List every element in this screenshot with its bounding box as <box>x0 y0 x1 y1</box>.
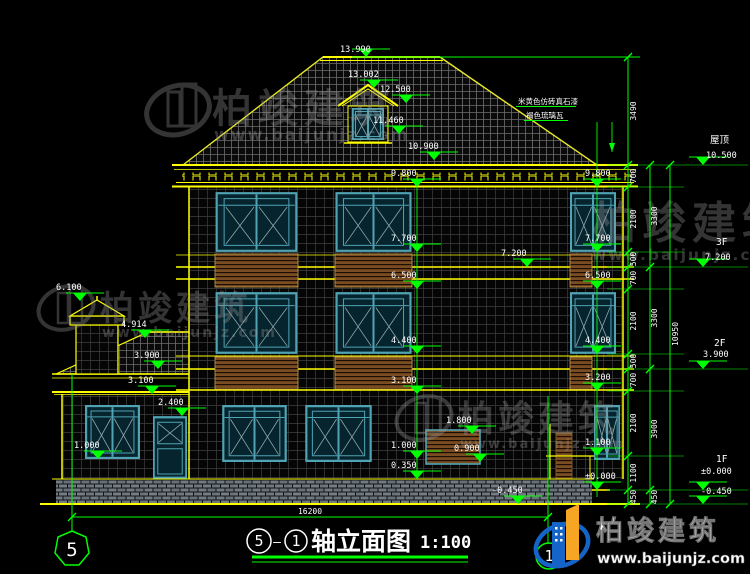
dim-value: 700 <box>629 271 638 286</box>
axis-bubble-5: 5 <box>55 531 89 565</box>
dim-value: 3300 <box>650 206 659 225</box>
drawing-canvas: 柏竣建筑 www.baijunjz.com 柏竣建筑 www.baijunjz.… <box>0 0 750 574</box>
floor-elev: 3.900 <box>703 350 729 360</box>
brand-logo: 柏竣建筑 www.baijunjz.com <box>529 504 745 574</box>
title-axis-to: 1 <box>291 532 300 550</box>
elev-label: -0.450 <box>492 486 523 496</box>
logo-building-orange <box>566 504 579 560</box>
note-wall-finish: 米黄色仿砖真石漆 <box>518 96 578 106</box>
elev-label: 6.100 <box>56 283 82 293</box>
dim-overall-width: 16200 <box>298 507 322 516</box>
dim-value: 450 <box>629 490 638 505</box>
watermark-url: www.baijunjz.com <box>214 125 409 144</box>
elev-label: 13.002 <box>348 70 379 80</box>
elev-label: 3.100 <box>128 376 154 386</box>
elev-label: 6.500 <box>391 271 417 281</box>
elev-label: 1.000 <box>391 441 417 451</box>
dim-value: 700 <box>629 169 638 184</box>
dim-value: 1100 <box>629 463 638 482</box>
dim-value: 500 <box>629 354 638 369</box>
elev-label: 1.100 <box>585 438 611 448</box>
elev-label: 1.800 <box>446 416 472 426</box>
elev-label: 0.350 <box>391 461 417 471</box>
elev-label: 1.000 <box>74 441 100 451</box>
floor-elev: -0.450 <box>701 487 732 497</box>
watermark-brand: 柏竣建筑 <box>458 399 618 440</box>
dim-value: 500 <box>629 252 638 267</box>
elev-label: 11.460 <box>373 116 404 126</box>
elev-label: 9.800 <box>585 169 611 179</box>
material-notes: 米黄色仿砖真石漆 褐色琉璃瓦 <box>518 96 578 120</box>
logo-url-text: www.baijunjz.com <box>597 551 745 567</box>
elev-label: 6.500 <box>585 271 611 281</box>
drawing-scale: 1:100 <box>420 533 471 553</box>
floor-flag-labels: 屋顶 10.500 3F 7.200 2F 3.900 1F ±0.000 -0… <box>701 135 737 497</box>
window-1f-left <box>223 406 285 461</box>
elev-label: 10.900 <box>408 142 439 152</box>
elev-label: 3.200 <box>585 373 611 383</box>
title-separator: — <box>273 535 281 550</box>
slat-panel <box>215 357 298 389</box>
slat-panel <box>215 254 298 287</box>
floor-name: 1F <box>716 454 728 465</box>
dim-value: 3300 <box>650 308 659 327</box>
floor-elev: 10.500 <box>706 151 737 161</box>
note-roof-tile: 褐色琉璃瓦 <box>526 110 564 120</box>
floor-name: 屋顶 <box>710 135 730 146</box>
elev-label: 13.990 <box>340 45 371 55</box>
dim-value: 3900 <box>650 419 659 438</box>
drawing-title: 轴立面图 <box>311 527 411 556</box>
title-bar: 5 — 1 轴立面图 1:100 <box>247 527 471 562</box>
watermark-top-left: 柏竣建筑 www.baijunjz.com <box>140 77 409 144</box>
floor-name: 3F <box>716 237 728 248</box>
elev-label: 4.400 <box>585 336 611 346</box>
dim-value: 2100 <box>629 209 638 228</box>
dim-value: 450 <box>650 490 659 505</box>
window-1f-mid <box>306 406 370 461</box>
elev-label: ±0.000 <box>585 472 616 482</box>
elev-label: 12.500 <box>380 85 411 95</box>
dim-value: 2100 <box>629 413 638 432</box>
window-3f-left <box>217 193 297 251</box>
cad-elevation-drawing: 柏竣建筑 www.baijunjz.com 柏竣建筑 www.baijunjz.… <box>0 0 750 574</box>
elev-label: 4.914 <box>121 320 147 330</box>
dim-value: 2100 <box>629 311 638 330</box>
elev-label: 3.100 <box>391 376 417 386</box>
elev-label: 7.700 <box>391 234 417 244</box>
dim-value: 700 <box>629 373 638 388</box>
axis-bubble-5-label: 5 <box>66 539 77 561</box>
elev-label: 7.200 <box>501 249 527 259</box>
floor-elev: 7.200 <box>705 253 731 263</box>
elev-label: 9.800 <box>391 169 417 179</box>
porch-door <box>154 417 187 477</box>
dim-value: 3490 <box>629 101 638 120</box>
dim-overall-height: 10950 <box>671 322 680 346</box>
logo-building-blue <box>552 522 565 564</box>
floor-name: 2F <box>714 338 726 349</box>
elev-label: 7.700 <box>585 234 611 244</box>
elev-label: 0.900 <box>454 444 480 454</box>
logo-brand-text: 柏竣建筑 <box>596 515 720 547</box>
elev-label: 2.400 <box>158 398 184 408</box>
elev-label: 3.900 <box>134 351 160 361</box>
title-axis-from: 5 <box>254 532 263 550</box>
floor-elev: ±0.000 <box>701 467 732 477</box>
elev-label: 4.400 <box>391 336 417 346</box>
